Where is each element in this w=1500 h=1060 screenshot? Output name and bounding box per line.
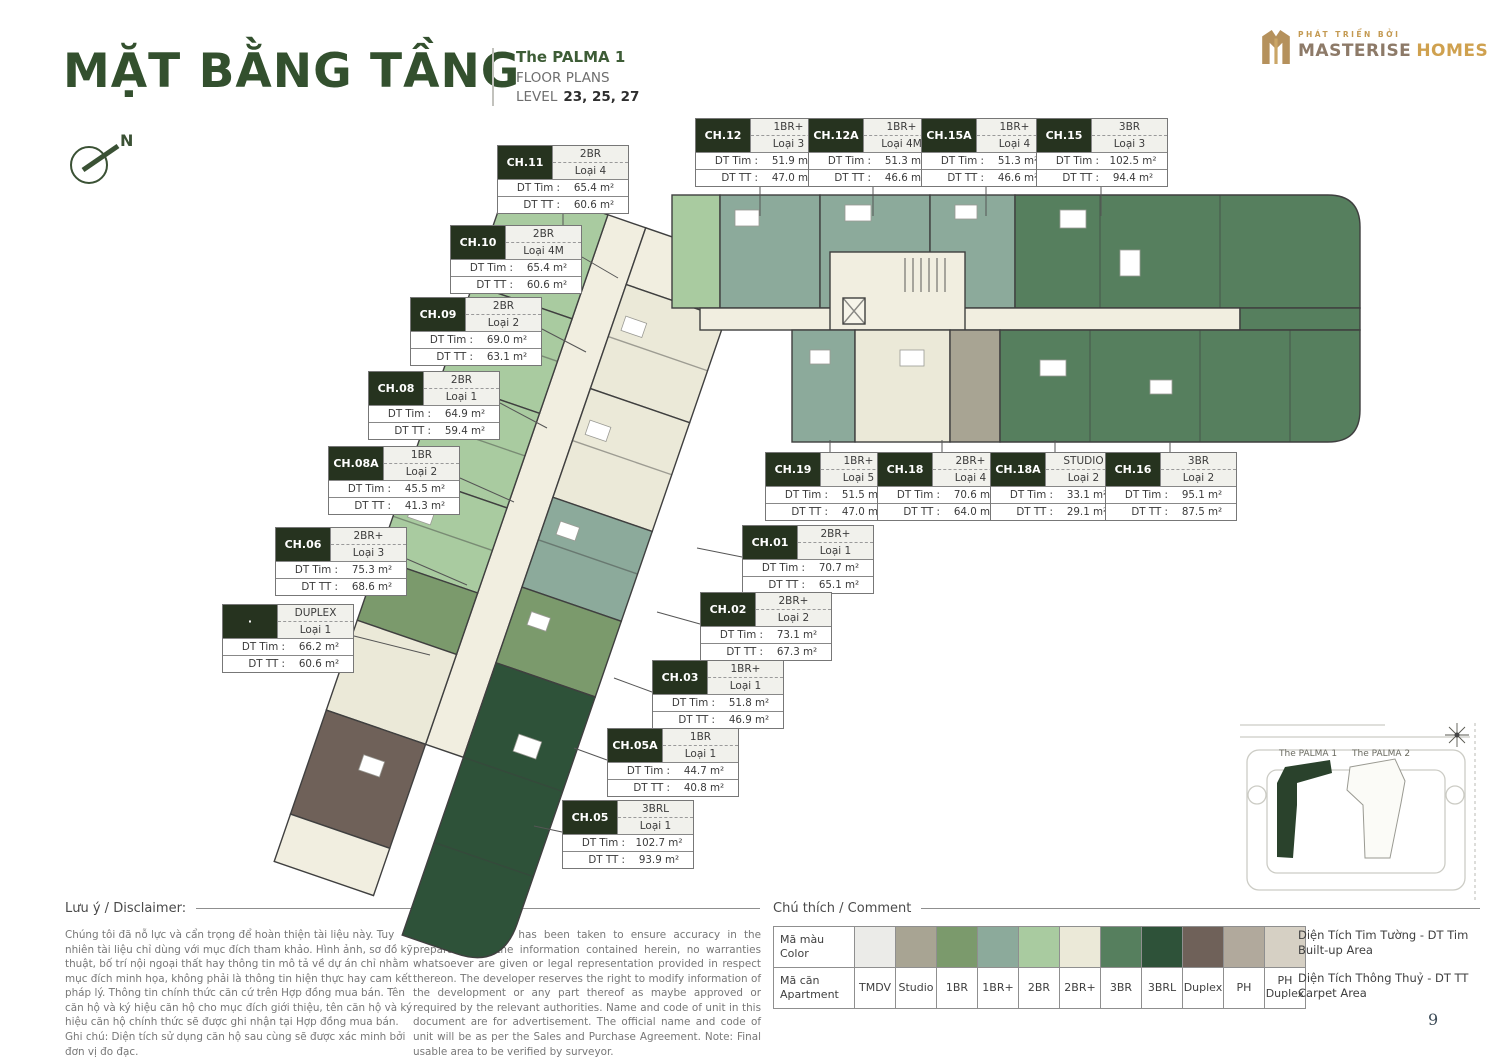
unit-box-CH.05: CH.053BRLLoại 1DT Tim :102.7 m²DT TT :93… <box>562 800 694 869</box>
unit-id: CH.08 <box>369 372 424 405</box>
dt-tim-label: DT Tim : <box>369 408 431 420</box>
unit-dt-tt-row: DT TT :60.6 m² <box>451 276 581 293</box>
dt-tt-label: DT TT : <box>653 714 715 726</box>
unit-box-CH.03: CH.031BR+Loại 1DT Tim :51.8 m²DT TT :46.… <box>652 660 784 729</box>
unit-box-CH.02: CH.022BR+Loại 2DT Tim :73.1 m²DT TT :67.… <box>700 592 832 661</box>
dt-tim-label: DT Tim : <box>498 182 560 194</box>
unit-dt-tt-row: DT TT :60.6 m² <box>498 196 628 213</box>
unit-type-cells: 2BR+Loại 1 <box>798 526 873 559</box>
dt-tim-label: DT Tim : <box>766 489 828 501</box>
unit-type: 2BR+ <box>331 528 406 545</box>
dt-tim-label: DT Tim : <box>1037 155 1099 167</box>
dt-tt-value: 46.9 m² <box>715 714 783 726</box>
dt-tt-value: 87.5 m² <box>1168 506 1236 518</box>
unit-box-header: CH.182BR+Loại 4 <box>878 453 1008 487</box>
unit-dt-tim-row: DT Tim :70.6 m² <box>878 487 1008 503</box>
unit-box-header: CH.012BR+Loại 1 <box>743 526 873 560</box>
unit-box-header: CH.022BR+Loại 2 <box>701 593 831 627</box>
dt-tt-value: 60.6 m² <box>560 199 628 211</box>
unit-type: 2BR <box>506 226 581 243</box>
dt-tim-value: 66.2 m² <box>285 641 353 653</box>
dt-tt-label: DT TT : <box>223 658 285 670</box>
unit-box-duplex: ·DUPLEXLoại 1DT Tim :66.2 m²DT TT :60.6 … <box>222 604 354 673</box>
unit-type-cells: 2BRLoại 2 <box>466 298 541 331</box>
unit-id: CH.02 <box>701 593 756 626</box>
unit-box-header: CH.12A1BR+Loại 4M <box>809 119 939 153</box>
dt-tim-value: 102.7 m² <box>625 837 693 849</box>
unit-box-CH.08: CH.082BRLoại 1DT Tim :64.9 m²DT TT :59.4… <box>368 371 500 440</box>
unit-loai: Loại 1 <box>663 746 738 762</box>
unit-loai: Loại 3 <box>1092 136 1167 152</box>
dt-tt-value: 65.1 m² <box>805 579 873 591</box>
unit-type-cells: 2BRLoại 4 <box>553 146 628 179</box>
legend-code-3BRL: 3BRL <box>1142 968 1183 1009</box>
unit-box-CH.18A: CH.18ASTUDIOLoại 2DT Tim :33.1 m²DT TT :… <box>990 452 1122 521</box>
unit-loai: Loại 1 <box>278 622 353 638</box>
unit-box-header: CH.08A1BRLoại 2 <box>329 447 459 481</box>
unit-id: CH.05A <box>608 729 663 762</box>
dt-tt-label: DT TT : <box>696 172 758 184</box>
dt-tim-label: DT Tim : <box>223 641 285 653</box>
unit-loai: Loại 2 <box>384 464 459 480</box>
unit-dt-tim-row: DT Tim :65.4 m² <box>451 260 581 276</box>
dt-tt-value: 94.4 m² <box>1099 172 1167 184</box>
unit-loai: Loại 4M <box>506 243 581 259</box>
legend-code-2BR+: 2BR+ <box>1060 968 1101 1009</box>
unit-dt-tim-row: DT Tim :75.3 m² <box>276 562 406 578</box>
unit-dt-tim-row: DT Tim :51.3 m² <box>922 153 1052 169</box>
dt-tim-label: DT Tim : <box>922 155 984 167</box>
unit-type-cells: 2BR+Loại 3 <box>331 528 406 561</box>
unit-dt-tt-row: DT TT :47.0 m² <box>696 169 826 186</box>
unit-type-cells: 1BRLoại 2 <box>384 447 459 480</box>
dt-tt-value: 60.6 m² <box>285 658 353 670</box>
dt-tt-value: 41.3 m² <box>391 500 459 512</box>
unit-dt-tt-row: DT TT :63.1 m² <box>411 348 541 365</box>
dt-tim-value: 70.7 m² <box>805 562 873 574</box>
dt-tim-label: DT Tim : <box>653 697 715 709</box>
unit-type-cells: 1BR+Loại 1 <box>708 661 783 694</box>
unit-type: 2BR <box>553 146 628 163</box>
dt-tt-label: DT TT : <box>451 279 513 291</box>
dt-tim-label: DT Tim : <box>411 334 473 346</box>
dt-tt-value: 67.3 m² <box>763 646 831 658</box>
unit-id: CH.15A <box>922 119 977 152</box>
unit-dt-tim-row: DT Tim :51.8 m² <box>653 695 783 711</box>
dt-tim-value: 64.9 m² <box>431 408 499 420</box>
dt-tt-value: 40.8 m² <box>670 782 738 794</box>
unit-box-CH.09: CH.092BRLoại 2DT Tim :69.0 m²DT TT :63.1… <box>410 297 542 366</box>
unit-dt-tim-row: DT Tim :102.5 m² <box>1037 153 1167 169</box>
unit-type-cells: 2BRLoại 1 <box>424 372 499 405</box>
unit-type: 1BR+ <box>708 661 783 678</box>
unit-type: 2BR+ <box>798 526 873 543</box>
unit-loai: Loại 4 <box>553 163 628 179</box>
unit-type: 2BR <box>424 372 499 389</box>
legend-swatch-Duplex <box>1183 927 1224 968</box>
dt-tim-label: DT Tim : <box>809 155 871 167</box>
legend-swatch-2BR+ <box>1060 927 1101 968</box>
dt-tt-label: DT TT : <box>809 172 871 184</box>
unit-dt-tim-row: DT Tim :33.1 m² <box>991 487 1121 503</box>
legend-notes: Diện Tích Tim Tường - DT TimBuilt-up Are… <box>1298 928 1493 1014</box>
dt-tim-label: DT Tim : <box>701 629 763 641</box>
legend-code-Studio: Studio <box>896 968 937 1009</box>
legend-code-2BR: 2BR <box>1019 968 1060 1009</box>
dt-tt-label: DT TT : <box>1037 172 1099 184</box>
unit-dt-tt-row: DT TT :46.6 m² <box>922 169 1052 186</box>
legend-swatch-3BRL <box>1142 927 1183 968</box>
dt-tim-value: 95.1 m² <box>1168 489 1236 501</box>
dt-tim-label: DT Tim : <box>563 837 625 849</box>
unit-dt-tt-row: DT TT :46.6 m² <box>809 169 939 186</box>
legend-swatch-2BR <box>1019 927 1060 968</box>
dt-tt-label: DT TT : <box>743 579 805 591</box>
legend-color-label: Mã màuColor <box>774 927 855 968</box>
dt-tt-value: 60.6 m² <box>513 279 581 291</box>
dt-tt-label: DT TT : <box>563 854 625 866</box>
unit-loai: Loại 1 <box>798 543 873 559</box>
unit-box-CH.15A: CH.15A1BR+Loại 4DT Tim :51.3 m²DT TT :46… <box>921 118 1053 187</box>
unit-box-CH.05A: CH.05A1BRLoại 1DT Tim :44.7 m²DT TT :40.… <box>607 728 739 797</box>
legend-code-1BR: 1BR <box>937 968 978 1009</box>
unit-id: CH.16 <box>1106 453 1161 486</box>
unit-type-cells: 2BRLoại 4M <box>506 226 581 259</box>
dt-tim-label: DT Tim : <box>696 155 758 167</box>
minimap-palma1-building <box>1277 760 1332 858</box>
unit-dt-tim-row: DT Tim :51.9 m² <box>696 153 826 169</box>
dt-tt-label: DT TT : <box>498 199 560 211</box>
unit-type: 3BR <box>1161 453 1236 470</box>
unit-dt-tim-row: DT Tim :69.0 m² <box>411 332 541 348</box>
unit-type: 3BRL <box>618 801 693 818</box>
unit-id: CH.08A <box>329 447 384 480</box>
unit-loai: Loại 2 <box>756 610 831 626</box>
unit-loai: Loại 1 <box>424 389 499 405</box>
unit-dt-tim-row: DT Tim :65.4 m² <box>498 180 628 196</box>
unit-dt-tim-row: DT Tim :45.5 m² <box>329 481 459 497</box>
legend-apartment-label: Mã cănApartment <box>774 968 855 1009</box>
dt-tim-label: DT Tim : <box>878 489 940 501</box>
unit-type-cells: 3BRLLoại 1 <box>618 801 693 834</box>
unit-id: CH.01 <box>743 526 798 559</box>
unit-dt-tt-row: DT TT :93.9 m² <box>563 851 693 868</box>
dt-tt-label: DT TT : <box>329 500 391 512</box>
unit-id: CH.11 <box>498 146 553 179</box>
dt-tt-label: DT TT : <box>991 506 1053 518</box>
dt-tt-label: DT TT : <box>276 581 338 593</box>
unit-loai: Loại 2 <box>466 315 541 331</box>
unit-type: 1BR <box>384 447 459 464</box>
unit-loai: Loại 3 <box>331 545 406 561</box>
unit-dt-tt-row: DT TT :67.3 m² <box>701 643 831 660</box>
unit-loai: Loại 1 <box>708 678 783 694</box>
unit-box-header: CH.121BR+Loại 3 <box>696 119 826 153</box>
dt-tt-label: DT TT : <box>411 351 473 363</box>
unit-box-CH.15: CH.153BRLoại 3DT Tim :102.5 m²DT TT :94.… <box>1036 118 1168 187</box>
unit-id: CH.19 <box>766 453 821 486</box>
unit-dt-tt-row: DT TT :60.6 m² <box>223 655 353 672</box>
unit-box-header: CH.163BRLoại 2 <box>1106 453 1236 487</box>
unit-dt-tt-row: DT TT :41.3 m² <box>329 497 459 514</box>
floor-plan-page: MẶT BẰNG TẦNG The PALMA 1 FLOOR PLANS LE… <box>0 0 1500 1060</box>
dt-tt-label: DT TT : <box>766 506 828 518</box>
unit-id: CH.03 <box>653 661 708 694</box>
dt-tim-value: 51.8 m² <box>715 697 783 709</box>
leader-line-CH.03 <box>614 678 652 692</box>
unit-type: 3BR <box>1092 119 1167 136</box>
dt-tim-value: 65.4 m² <box>513 262 581 274</box>
dt-tim-value: 45.5 m² <box>391 483 459 495</box>
legend-code-PH: PH <box>1224 968 1265 1009</box>
unit-type: DUPLEX <box>278 605 353 622</box>
unit-box-CH.16: CH.163BRLoại 2DT Tim :95.1 m²DT TT :87.5… <box>1105 452 1237 521</box>
unit-id: CH.06 <box>276 528 331 561</box>
unit-box-CH.08A: CH.08A1BRLoại 2DT Tim :45.5 m²DT TT :41.… <box>328 446 460 515</box>
unit-id: CH.09 <box>411 298 466 331</box>
unit-dt-tt-row: DT TT :87.5 m² <box>1106 503 1236 520</box>
unit-dt-tim-row: DT Tim :102.7 m² <box>563 835 693 851</box>
unit-dt-tt-row: DT TT :68.6 m² <box>276 578 406 595</box>
dt-tim-value: 65.4 m² <box>560 182 628 194</box>
unit-dt-tt-row: DT TT :94.4 m² <box>1037 169 1167 186</box>
unit-box-header: CH.062BR+Loại 3 <box>276 528 406 562</box>
unit-id: CH.18 <box>878 453 933 486</box>
leader-line-CH.01 <box>697 548 742 557</box>
legend-swatch-3BR <box>1101 927 1142 968</box>
unit-loai: Loại 2 <box>1161 470 1236 486</box>
dt-tim-label: DT Tim : <box>329 483 391 495</box>
unit-box-header: CH.05A1BRLoại 1 <box>608 729 738 763</box>
unit-id: · <box>223 605 278 638</box>
legend-swatch-Studio <box>896 927 937 968</box>
unit-dt-tim-row: DT Tim :95.1 m² <box>1106 487 1236 503</box>
minimap-compass-icon <box>1445 723 1469 747</box>
minimap-label-palma1: The PALMA 1 <box>1278 749 1337 759</box>
dt-tim-value: 69.0 m² <box>473 334 541 346</box>
minimap-label-palma2: The PALMA 2 <box>1351 749 1410 759</box>
unit-box-header: CH.15A1BR+Loại 4 <box>922 119 1052 153</box>
unit-dt-tim-row: DT Tim :70.7 m² <box>743 560 873 576</box>
dt-tt-value: 68.6 m² <box>338 581 406 593</box>
unit-type: 2BR <box>466 298 541 315</box>
unit-loai: Loại 1 <box>618 818 693 834</box>
unit-dt-tim-row: DT Tim :73.1 m² <box>701 627 831 643</box>
unit-box-header: CH.112BRLoại 4 <box>498 146 628 180</box>
top-wing <box>672 195 1360 442</box>
dt-tim-value: 73.1 m² <box>763 629 831 641</box>
dt-tt-value: 93.9 m² <box>625 854 693 866</box>
legend-code-TMDV: TMDV <box>855 968 896 1009</box>
unit-type: 1BR <box>663 729 738 746</box>
unit-dt-tt-row: DT TT :40.8 m² <box>608 779 738 796</box>
unit-type-cells: 1BRLoại 1 <box>663 729 738 762</box>
minimap-palma2-building <box>1347 759 1405 858</box>
dt-tim-label: DT Tim : <box>608 765 670 777</box>
unit-id: CH.12 <box>696 119 751 152</box>
dt-tim-label: DT Tim : <box>276 564 338 576</box>
unit-box-header: CH.082BRLoại 1 <box>369 372 499 406</box>
dt-tim-value: 102.5 m² <box>1099 155 1167 167</box>
dt-tt-value: 59.4 m² <box>431 425 499 437</box>
legend-swatch-PH <box>1224 927 1265 968</box>
dt-tim-value: 75.3 m² <box>338 564 406 576</box>
unit-id: CH.12A <box>809 119 864 152</box>
unit-dt-tim-row: DT Tim :44.7 m² <box>608 763 738 779</box>
unit-box-header: ·DUPLEXLoại 1 <box>223 605 353 639</box>
unit-dt-tt-row: DT TT :65.1 m² <box>743 576 873 593</box>
unit-dt-tt-row: DT TT :46.9 m² <box>653 711 783 728</box>
unit-id: CH.10 <box>451 226 506 259</box>
unit-box-CH.06: CH.062BR+Loại 3DT Tim :75.3 m²DT TT :68.… <box>275 527 407 596</box>
unit-dt-tim-row: DT Tim :51.3 m² <box>809 153 939 169</box>
unit-box-header: CH.092BRLoại 2 <box>411 298 541 332</box>
legend-swatch-1BR <box>937 927 978 968</box>
unit-dt-tim-row: DT Tim :66.2 m² <box>223 639 353 655</box>
unit-box-header: CH.102BRLoại 4M <box>451 226 581 260</box>
unit-id: CH.05 <box>563 801 618 834</box>
unit-dt-tt-row: DT TT :64.0 m² <box>878 503 1008 520</box>
unit-box-CH.01: CH.012BR+Loại 1DT Tim :70.7 m²DT TT :65.… <box>742 525 874 594</box>
dt-tt-label: DT TT : <box>922 172 984 184</box>
legend-code-1BR+: 1BR+ <box>978 968 1019 1009</box>
unit-box-header: CH.053BRLLoại 1 <box>563 801 693 835</box>
legend-swatch-1BR+ <box>978 927 1019 968</box>
dt-tt-label: DT TT : <box>701 646 763 658</box>
dt-tim-value: 44.7 m² <box>670 765 738 777</box>
unit-box-header: CH.031BR+Loại 1 <box>653 661 783 695</box>
dt-tt-label: DT TT : <box>369 425 431 437</box>
leader-line-CH.05A <box>574 748 607 760</box>
unit-type-cells: 2BR+Loại 2 <box>756 593 831 626</box>
unit-type-cells: DUPLEXLoại 1 <box>278 605 353 638</box>
dt-tim-label: DT Tim : <box>743 562 805 574</box>
unit-box-header: CH.18ASTUDIOLoại 2 <box>991 453 1121 487</box>
unit-box-header: CH.153BRLoại 3 <box>1037 119 1167 153</box>
legend-table: Mã màuColor Mã cănApartment TMDVStudio1B… <box>773 926 1306 1009</box>
unit-type-cells: 3BRLoại 3 <box>1092 119 1167 152</box>
unit-id: CH.15 <box>1037 119 1092 152</box>
legend-note-built-up: Diện Tích Tim Tường - DT TimBuilt-up Are… <box>1298 928 1493 958</box>
dt-tt-label: DT TT : <box>608 782 670 794</box>
dt-tim-label: DT Tim : <box>991 489 1053 501</box>
dt-tt-label: DT TT : <box>1106 506 1168 518</box>
unit-dt-tt-row: DT TT :59.4 m² <box>369 422 499 439</box>
unit-box-CH.11: CH.112BRLoại 4DT Tim :65.4 m²DT TT :60.6… <box>497 145 629 214</box>
unit-dt-tim-row: DT Tim :64.9 m² <box>369 406 499 422</box>
site-minimap: The PALMA 1 The PALMA 2 <box>1235 695 1500 905</box>
unit-type: 2BR+ <box>756 593 831 610</box>
unit-dt-tt-row: DT TT :29.1 m² <box>991 503 1121 520</box>
dt-tt-value: 63.1 m² <box>473 351 541 363</box>
unit-type-cells: 3BRLoại 2 <box>1161 453 1236 486</box>
leader-line-CH.02 <box>657 612 700 624</box>
unit-box-CH.10: CH.102BRLoại 4MDT Tim :65.4 m²DT TT :60.… <box>450 225 582 294</box>
legend-swatch-TMDV <box>855 927 896 968</box>
unit-id: CH.18A <box>991 453 1046 486</box>
legend-code-3BR: 3BR <box>1101 968 1142 1009</box>
legend-note-carpet: Diện Tích Thông Thuỷ - DT TTCarpet Area <box>1298 971 1493 1001</box>
dt-tt-label: DT TT : <box>878 506 940 518</box>
dt-tim-label: DT Tim : <box>1106 489 1168 501</box>
legend-code-Duplex: Duplex <box>1183 968 1224 1009</box>
dt-tim-label: DT Tim : <box>451 262 513 274</box>
